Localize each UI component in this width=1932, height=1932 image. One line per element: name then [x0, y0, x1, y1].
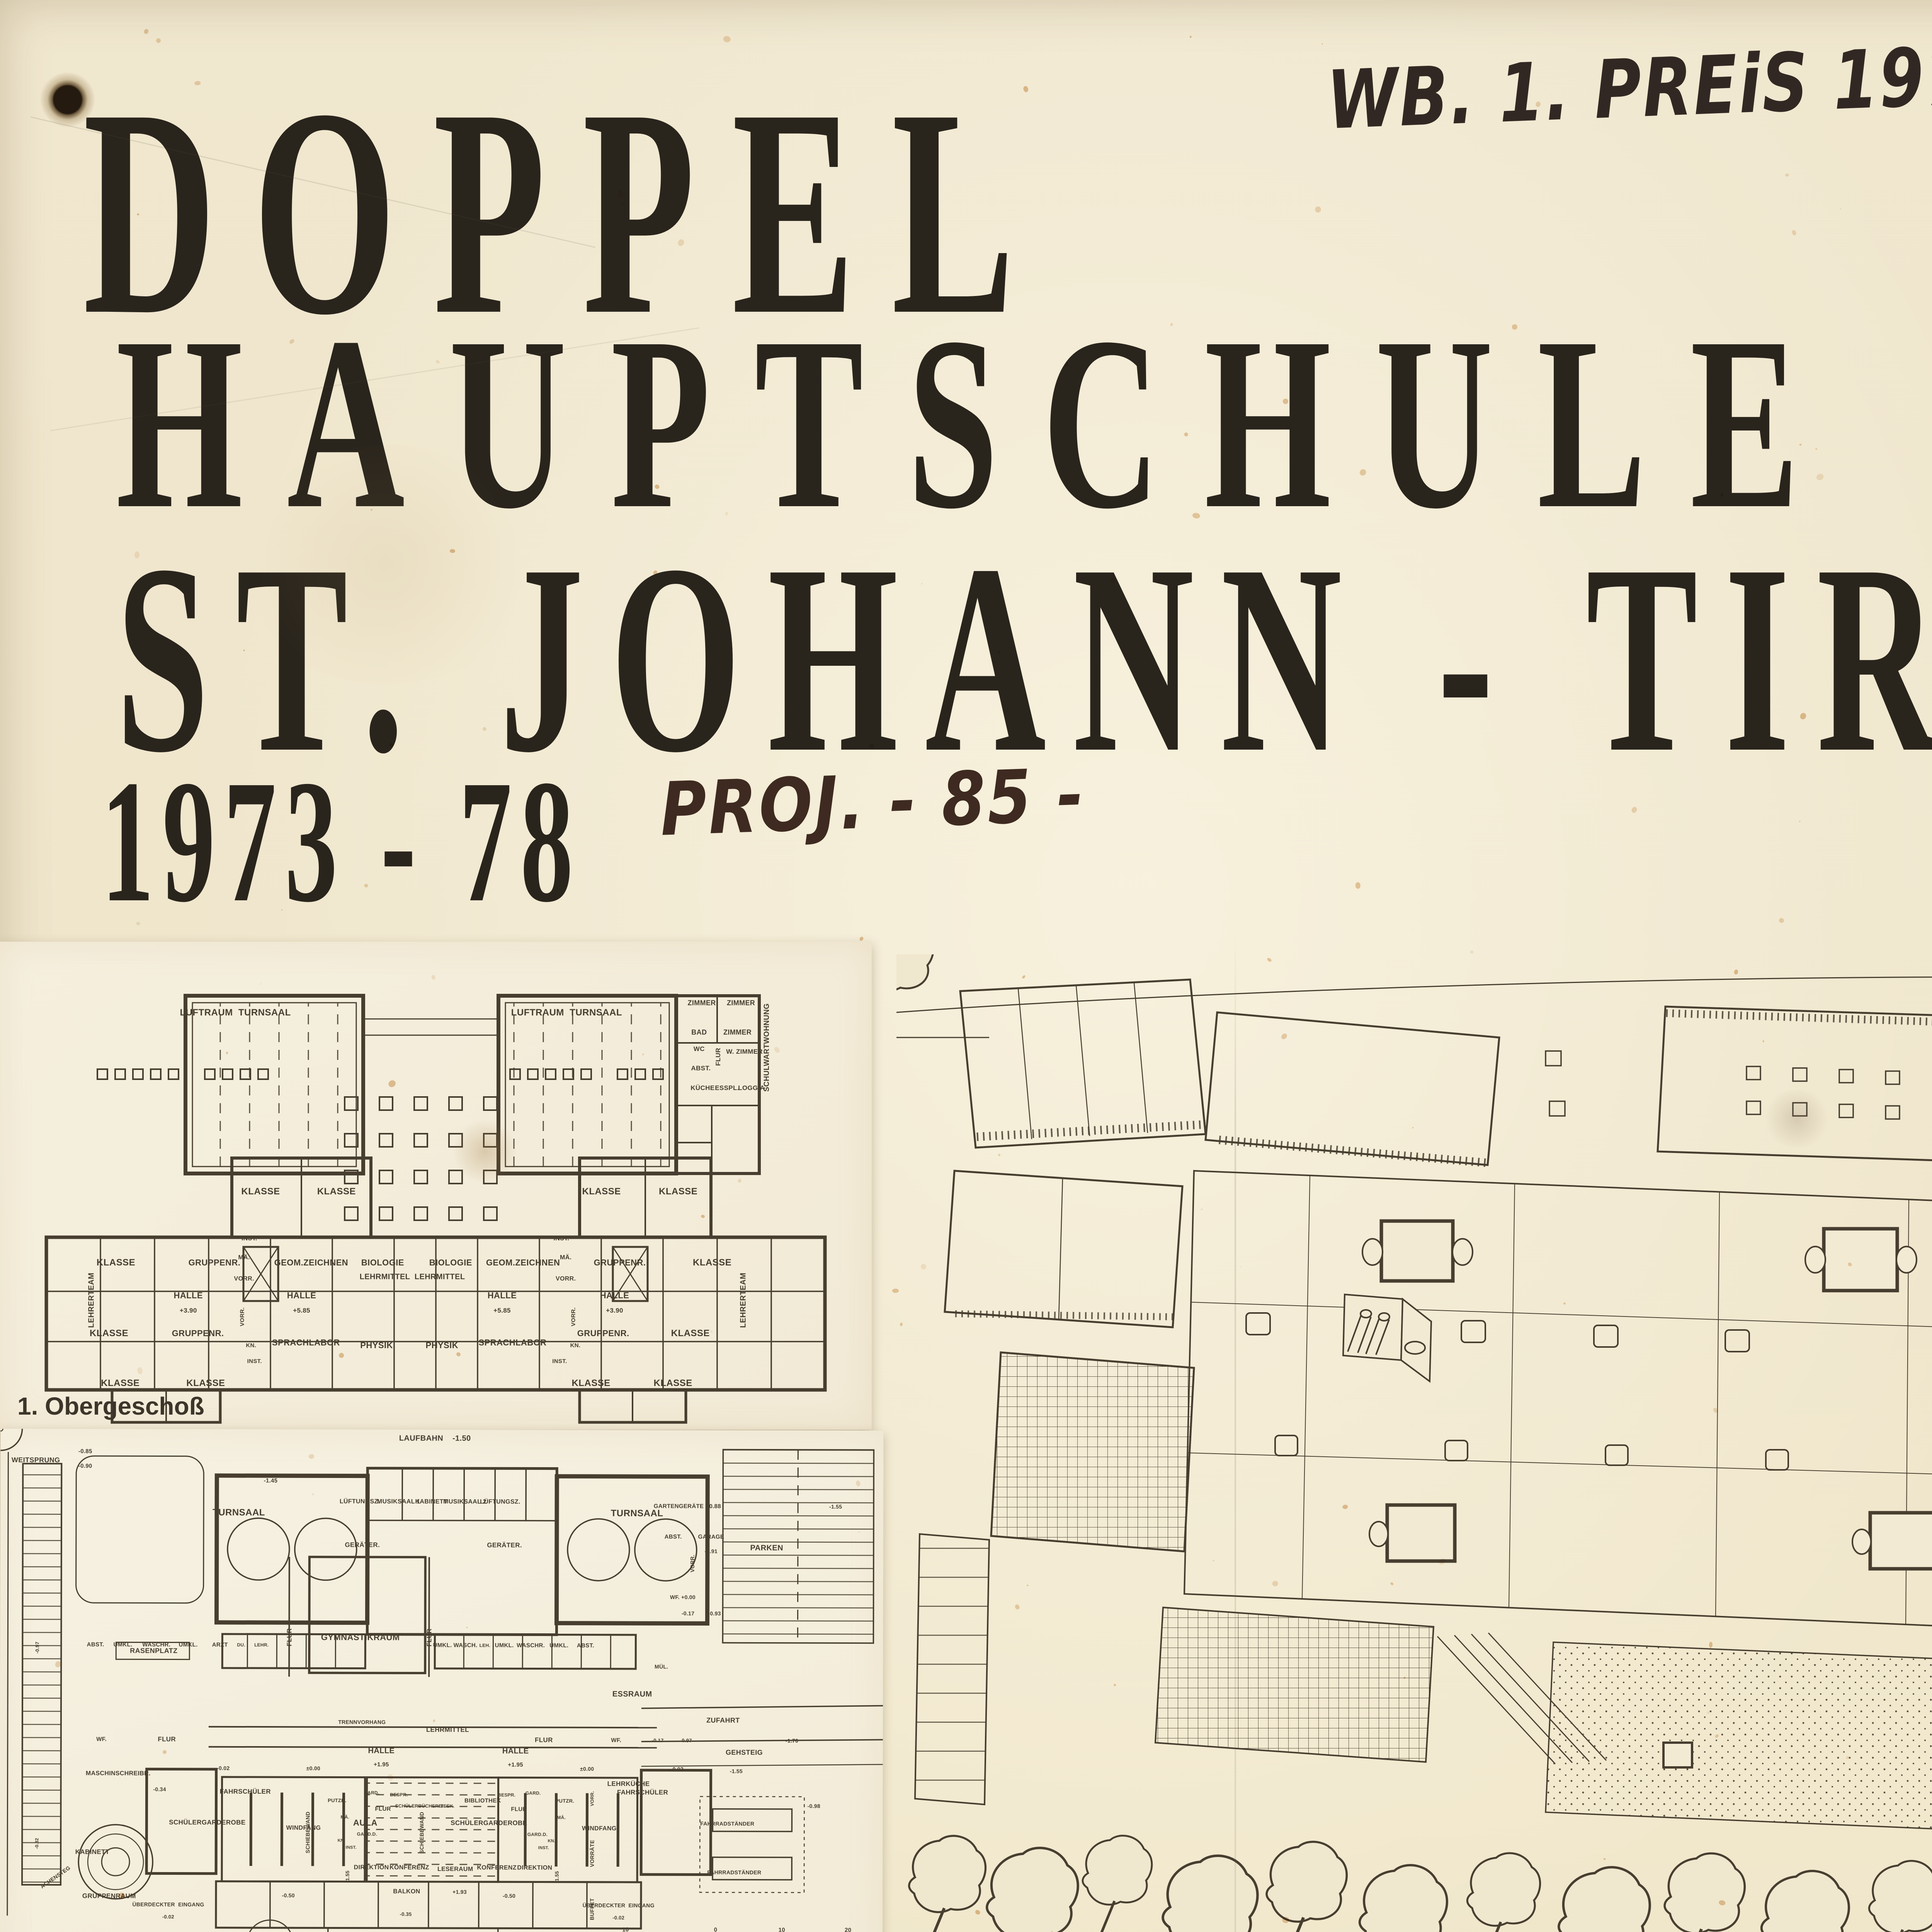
plan-label: -0.90 — [78, 1463, 92, 1469]
plan-label: FLUR — [425, 1629, 433, 1647]
foxing-speck — [155, 37, 162, 44]
plan-label: ZIMMER — [723, 1028, 752, 1036]
plan-label: GRUPPENR. — [189, 1258, 241, 1268]
foxing-speck — [723, 35, 731, 43]
plan-label: UMKL. — [549, 1642, 568, 1649]
plan-label: LESERAUM — [437, 1866, 473, 1873]
plan-label: +5.85 — [493, 1307, 511, 1315]
foxing-speck — [1470, 950, 1474, 954]
plan-label: FLUR — [535, 1736, 553, 1744]
plan-label: HALLE — [368, 1747, 395, 1755]
plan-label: GARD. — [526, 1790, 541, 1796]
plan-label: +1.93 — [452, 1889, 467, 1895]
plan-label: GARD.D. — [527, 1832, 548, 1837]
plan-label: KLASSE — [317, 1186, 356, 1197]
plan-label: SPRACHLABOR — [479, 1338, 547, 1348]
plan-label: -1.55 — [730, 1768, 743, 1774]
plan-label: ±0.00 — [306, 1765, 320, 1772]
plan-label: PHYSIK — [426, 1340, 459, 1350]
plan-label: LOGGIA — [738, 1084, 765, 1092]
plan-label: GRUPPENR. — [172, 1328, 224, 1338]
plan-label: KONFERENZ — [477, 1864, 516, 1871]
plan-label: VORR. — [689, 1555, 696, 1573]
title-years: 1973 - 78 — [101, 753, 582, 929]
foxing-speck — [143, 29, 149, 35]
plan-label: INST. — [241, 1235, 257, 1242]
plan-label: SCHIEBEWAND — [305, 1811, 311, 1853]
foxing-speck — [1315, 206, 1321, 213]
plan-label: LEHRKÜCHE — [607, 1780, 650, 1788]
plan-label: +1.95 — [508, 1762, 523, 1768]
plan-label: VORRÄTE — [589, 1840, 595, 1867]
foxing-speck — [859, 936, 864, 941]
plan-label: -0.82 — [34, 1838, 39, 1849]
handwritten-project-note: PROJ. - 85 - — [659, 752, 1087, 852]
plan-label: VORR. — [570, 1308, 577, 1327]
plan-label: VORR. — [590, 1791, 595, 1806]
plan-label: -0.35 — [400, 1912, 412, 1917]
plan-label: HALLE — [502, 1747, 529, 1756]
plan-label: KLASSE — [582, 1186, 621, 1197]
plan-label: SCHÜLERGARDEROBE — [451, 1819, 527, 1827]
plan-label: -0.17 — [682, 1610, 694, 1616]
plan-label: FAHRSCHÜLER — [220, 1788, 271, 1796]
plan-label: HALLE — [488, 1291, 517, 1301]
plan-label: PHYSIK — [360, 1340, 393, 1350]
plan-label: GARD. — [364, 1790, 379, 1795]
plan-label: -0.97 — [34, 1641, 40, 1653]
plan-label: 10 — [779, 1927, 785, 1932]
plan-label: GERÄTER. — [487, 1541, 522, 1549]
plan-label: DU. — [237, 1642, 245, 1648]
plan-label: GARTENGERÄTE -0.88 — [654, 1503, 721, 1510]
plan-label: FAHRRADSTÄNDER — [700, 1820, 754, 1827]
plan-label: HALLE — [600, 1291, 629, 1301]
plan-label: WEITSPRUNG — [12, 1456, 60, 1464]
poster-board: DOPPEL HAUPTSCHULE ST. JOHANN - TIROL 19… — [0, 0, 1932, 1932]
plan-label: SCHIEBEWAND — [418, 1811, 425, 1853]
plan-label: KLASSE — [571, 1378, 610, 1389]
floorplan-sheet-obergeschoss: 1. Obergeschoß LUFTRAUM TURNSAALLUFTRAUM… — [0, 942, 872, 1430]
foxing-speck — [1840, 208, 1841, 210]
plan-label: FLUR — [375, 1806, 391, 1812]
plan-label: PUTZR. — [328, 1798, 347, 1803]
plan-label: W. ZIMMER — [726, 1048, 763, 1056]
plan-label: -0.02 — [612, 1915, 624, 1920]
plan-label: WASCHR. — [517, 1642, 545, 1649]
plan-label: WF. +0.00 — [670, 1594, 696, 1600]
plan-label: BALKON — [393, 1888, 420, 1895]
plan-label: FLUR — [286, 1628, 294, 1646]
plan-label: LEHRERTEAM — [87, 1273, 96, 1328]
axonometric-site-drawing — [896, 954, 1932, 1932]
plan-label: LEHRMITTEL LEHRMITTEL — [360, 1272, 465, 1281]
plan-label: GEOM.ZEICHNEN — [274, 1258, 349, 1268]
foxing-speck — [1189, 36, 1192, 38]
plan-label: BUFFET — [589, 1898, 595, 1920]
plan-label: VORR. — [239, 1308, 246, 1327]
plan-label: -0.93 — [708, 1611, 721, 1617]
plan-label: GRUPPENR. — [577, 1328, 629, 1338]
plan-label: LEH. — [480, 1643, 490, 1648]
plan-label: ZIMMER — [688, 999, 716, 1007]
plan-label: MÄ. — [557, 1815, 566, 1820]
plan-label: ABST. — [665, 1533, 682, 1540]
plan-label: SPRACHLABOR — [272, 1338, 340, 1348]
plan-label: INST. — [552, 1358, 567, 1365]
plan-label: ZUFAHRT — [706, 1716, 740, 1725]
plan-label: GEOM.ZEICHNEN — [486, 1258, 560, 1268]
foxing-speck — [1791, 230, 1797, 236]
plan-label: LÜFTUNGSZ. — [340, 1498, 380, 1505]
plan-label: -0.02 — [217, 1765, 230, 1771]
plan-label: KABINETT — [75, 1848, 110, 1856]
plan-label: VORR. — [234, 1276, 254, 1282]
plan-label: KN. — [548, 1839, 556, 1844]
plan-label: GERÄTER. — [345, 1541, 380, 1549]
plan-label: UMKL. — [495, 1642, 514, 1649]
obergeschoss-caption: 1. Obergeschoß — [17, 1392, 204, 1420]
plan-label: TURNSAAL — [611, 1508, 663, 1519]
plan-label: 0 — [714, 1927, 718, 1932]
plan-label: -1.70 — [786, 1738, 798, 1744]
plan-label: -0.97 — [680, 1738, 692, 1743]
plan-label: ESSRAUM — [612, 1690, 652, 1699]
plan-label: ±0.00 — [580, 1766, 594, 1772]
plan-label: BIOLOGIE — [361, 1258, 404, 1268]
punch-hole-top-left — [41, 70, 95, 128]
plan-label: KLASSE — [101, 1378, 139, 1389]
plan-label: ARZT — [212, 1642, 228, 1648]
plan-label: TURNSAAL — [213, 1507, 265, 1518]
plan-label: +5.85 — [293, 1307, 310, 1315]
plan-label: +3.90 — [606, 1307, 623, 1315]
plan-label: GYMNASTIKRAUM — [321, 1632, 400, 1642]
plan-label: KLASSE — [693, 1257, 731, 1268]
plan-label: MÄ. — [238, 1254, 250, 1261]
plan-label: FAHRRADSTÄNDER — [707, 1869, 761, 1875]
plan-label: DIREKTION — [354, 1864, 389, 1871]
plan-label: GEHSTEIG — [726, 1748, 763, 1757]
plan-label: -0.50 — [503, 1893, 515, 1899]
plan-label: -0.98 — [808, 1803, 820, 1809]
foxing-speck — [1321, 43, 1323, 45]
plan-label: KONFERENZ — [389, 1864, 429, 1871]
plan-label: HALLE — [174, 1291, 203, 1301]
plan-label: -1.55 — [554, 1871, 560, 1883]
plan-label: KN. — [570, 1342, 581, 1349]
plan-label: KÜCHE — [690, 1084, 714, 1092]
plan-label: BIBLIOTHEK — [464, 1798, 501, 1804]
plan-label: FLUR — [158, 1736, 176, 1743]
plan-label: WASCH. — [454, 1642, 478, 1649]
plan-label: 10 — [622, 1927, 629, 1932]
handwritten-award-note: WB. 1. PREiS 1972 — [1325, 27, 1932, 147]
plan-label: TEEK. — [440, 1803, 455, 1809]
plan-label: -0.34 — [153, 1786, 166, 1793]
plan-label: KLASSE — [654, 1378, 692, 1389]
foxing-speck — [1785, 173, 1789, 177]
plan-label: VORR. — [556, 1276, 576, 1282]
obergeschoss-plan-drawing — [0, 942, 872, 1430]
plan-label: ABST. — [691, 1065, 711, 1072]
plan-label: LAUFBAHN -1.50 — [399, 1434, 471, 1443]
plan-label: GARD.D. — [357, 1831, 377, 1837]
plan-label: WF. — [96, 1736, 107, 1743]
plan-label: AULA — [353, 1818, 378, 1828]
plan-label: INST. — [554, 1235, 570, 1242]
plan-label: BESPR. — [498, 1793, 515, 1798]
plan-label: UMKL. — [113, 1641, 132, 1648]
plan-label: BAD — [691, 1028, 707, 1036]
plan-label: -0.17 — [652, 1738, 664, 1743]
plan-label: SCHULWARTWOHNUNG — [763, 1003, 771, 1092]
plan-label: LUFTRAUM TURNSAAL — [511, 1007, 622, 1018]
plan-label: LEHRMITTEL — [426, 1726, 469, 1734]
plan-label: ABST. — [87, 1641, 104, 1648]
plan-label: KN. — [338, 1838, 345, 1843]
plan-label: KLASSE — [97, 1257, 135, 1268]
floorplan-sheet-erdgeschoss: Erdgeschoß LAUFBAHN -1.50WEITSPRUNG-0.85… — [0, 1429, 884, 1932]
plan-label: KLASSE — [659, 1186, 697, 1197]
plan-label: GRUPPENR. — [594, 1258, 646, 1268]
plan-label: WF. — [611, 1737, 621, 1744]
plan-label: ABST. — [577, 1642, 594, 1649]
plan-label: SCHÜLERGARDEROBE — [169, 1818, 245, 1826]
plan-label: +1.95 — [374, 1761, 389, 1768]
plan-label: ÜBERDECKTER EINGANG — [132, 1901, 204, 1907]
plan-label: WINDFANG — [582, 1825, 617, 1832]
plan-label: KLASSE — [671, 1328, 710, 1339]
plan-label: UMKL. — [179, 1641, 198, 1648]
plan-label: LEHRERTEAM — [739, 1273, 748, 1328]
plan-label: KABINETT — [415, 1498, 447, 1505]
plan-label: INST. — [538, 1845, 549, 1850]
plan-label: FLUR — [511, 1806, 527, 1813]
plan-label: BIOLOGIE — [429, 1258, 472, 1268]
plan-label: ZIMMER — [727, 999, 755, 1007]
plan-label: INST. — [247, 1358, 262, 1365]
plan-label: GARAGE — [698, 1533, 724, 1540]
foxing-speck — [1799, 821, 1801, 823]
plan-label: WINDFANG — [286, 1825, 321, 1832]
plan-label: INST. — [346, 1845, 357, 1850]
plan-label: LÜFTUNGSZ. — [480, 1498, 520, 1505]
plan-label: MÄ. — [340, 1815, 349, 1820]
plan-label: +3.90 — [180, 1307, 197, 1315]
plan-label: -1.55 — [345, 1871, 350, 1883]
plan-label: BESPR. — [390, 1792, 408, 1798]
plan-label: GRUPPENRAUM — [82, 1892, 136, 1900]
plan-label: MÜL. — [655, 1663, 668, 1670]
plan-label: -0.50 — [282, 1893, 295, 1899]
plan-label: DIREKTION — [517, 1864, 552, 1871]
plan-label: 20 — [845, 1927, 851, 1932]
plan-label: -1.55 — [829, 1503, 842, 1510]
plan-label: ÜBERDECKTER EINGANG — [583, 1902, 655, 1908]
plan-label: RASENPLATZ — [130, 1647, 177, 1655]
plan-label: SCHÜLERBÜCHEREI — [395, 1803, 443, 1809]
plan-label: MUSIKSAAL 1 — [377, 1498, 420, 1505]
plan-label: -0.02 — [162, 1913, 174, 1919]
plan-label: LEHR. — [254, 1642, 269, 1648]
foxing-speck — [1778, 917, 1785, 923]
plan-label: KN. — [246, 1342, 256, 1349]
plan-label: -0.91 — [705, 1548, 718, 1554]
plan-label: UMKL. — [433, 1642, 452, 1649]
plan-label: HALLE — [287, 1291, 316, 1301]
plan-label: KLASSE — [90, 1328, 128, 1339]
plan-label: FAHRSCHÜLER — [617, 1789, 668, 1796]
plan-label: PARKEN — [750, 1544, 783, 1553]
plan-label: PUTZR. — [556, 1798, 575, 1804]
plan-label: KLASSE — [241, 1186, 280, 1197]
plan-label: -0.02 — [671, 1766, 684, 1772]
plan-label: ESSPL. — [715, 1084, 739, 1092]
plan-label: MASCHINSCHREIBR. — [86, 1770, 151, 1777]
plan-label: WC — [694, 1045, 705, 1053]
plan-label: FLUR — [714, 1048, 722, 1066]
plan-label: LUFTRAUM TURNSAAL — [180, 1007, 291, 1018]
plan-label: KLASSE — [186, 1378, 225, 1389]
plan-label: -0.85 — [78, 1448, 92, 1455]
plan-label: MÄ. — [560, 1254, 571, 1261]
plan-label: TRENNVORHANG — [338, 1719, 386, 1725]
foxing-speck — [1355, 882, 1361, 889]
plan-label: -1.45 — [264, 1478, 278, 1484]
